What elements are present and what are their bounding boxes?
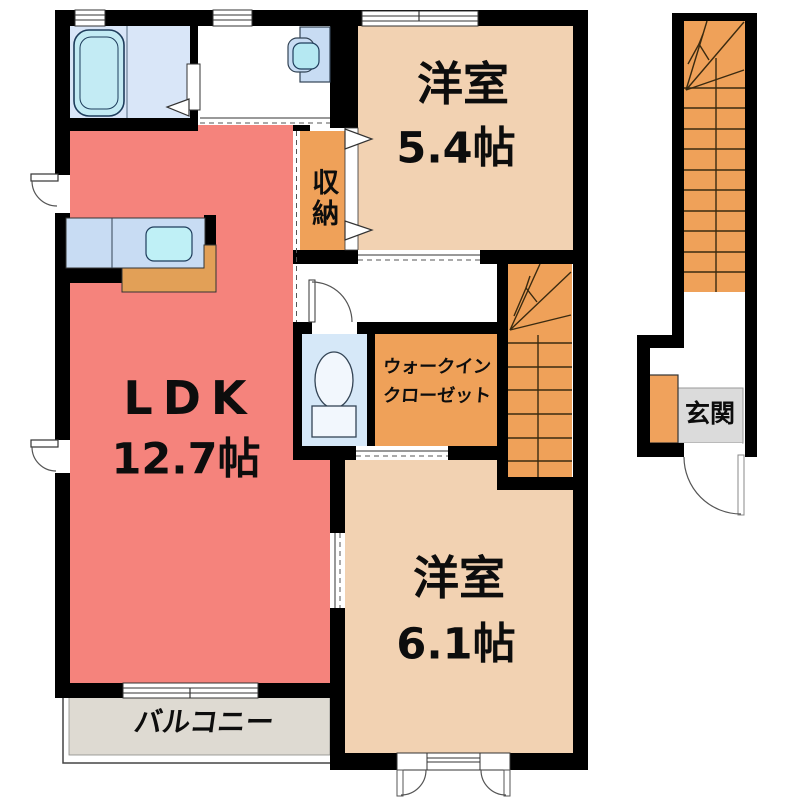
wall-entrance-top — [672, 13, 757, 21]
stairs-main-floor — [508, 264, 572, 477]
bedroom2-size: 6.1帖 — [396, 622, 515, 667]
bedroom1-sliding-door — [358, 250, 480, 264]
bath-window — [75, 10, 105, 26]
wall-entrance-right — [745, 13, 757, 457]
wall-kitchen-stub-left — [55, 267, 122, 283]
bathtub — [74, 26, 127, 118]
balcony-name: バルコニー — [132, 707, 276, 736]
wall-bath-bottom — [55, 118, 198, 131]
wall-top — [55, 10, 588, 26]
ldk-size: 12.7帖 — [111, 437, 260, 482]
ldk-bedroom2-sliding-door — [330, 533, 345, 608]
wall-left — [55, 10, 70, 698]
bedroom1-window — [362, 11, 478, 26]
wall-balcony-side — [330, 683, 345, 770]
wall-right — [573, 10, 588, 770]
wall-kitchen-stub-right — [204, 215, 216, 247]
walk-in-closet-name-line2: クローゼット — [382, 388, 491, 407]
wall-toilet-left — [293, 322, 302, 446]
wall-washroom-bedroom1 — [330, 26, 358, 128]
washroom-window — [213, 10, 252, 26]
bedroom1-name: 洋室 — [417, 60, 509, 108]
shoe-cabinet — [648, 375, 678, 443]
wall-toilet-wic-divider — [367, 334, 375, 446]
storage-name: 収納 — [308, 168, 336, 230]
floor-plan-page: 洋室 5.4帖 LDK 12.7帖 洋室 6.1帖 収納 ウォークイン クローゼ… — [0, 0, 800, 800]
hallway-floor — [293, 264, 497, 322]
wall-entrance-bottom — [637, 443, 684, 457]
walk-in-closet-name-line1: ウォークイン — [382, 359, 491, 378]
wall-bath-washroom-upper — [190, 26, 198, 70]
bedroom1-size: 5.4帖 — [396, 126, 515, 171]
wall-stairs-bottom — [497, 477, 573, 490]
bedroom2-terrace-doors — [397, 753, 510, 796]
wall-entrance-left-lower — [637, 335, 650, 455]
kitchen-sink — [146, 227, 192, 261]
washroom-ldk-boundary — [198, 117, 330, 125]
entrance-name: 玄関 — [685, 401, 735, 427]
bedroom2-floor — [345, 460, 573, 753]
wall-entrance-left-upper — [672, 13, 684, 347]
toilet — [312, 352, 356, 437]
bedroom2-name: 洋室 — [413, 554, 505, 602]
entrance-door — [684, 443, 744, 515]
wic-sliding-door — [356, 446, 448, 460]
ldk-name: LDK — [123, 374, 256, 422]
ldk-side-door-upper — [31, 174, 70, 213]
ldk-side-door-lower — [31, 440, 70, 473]
